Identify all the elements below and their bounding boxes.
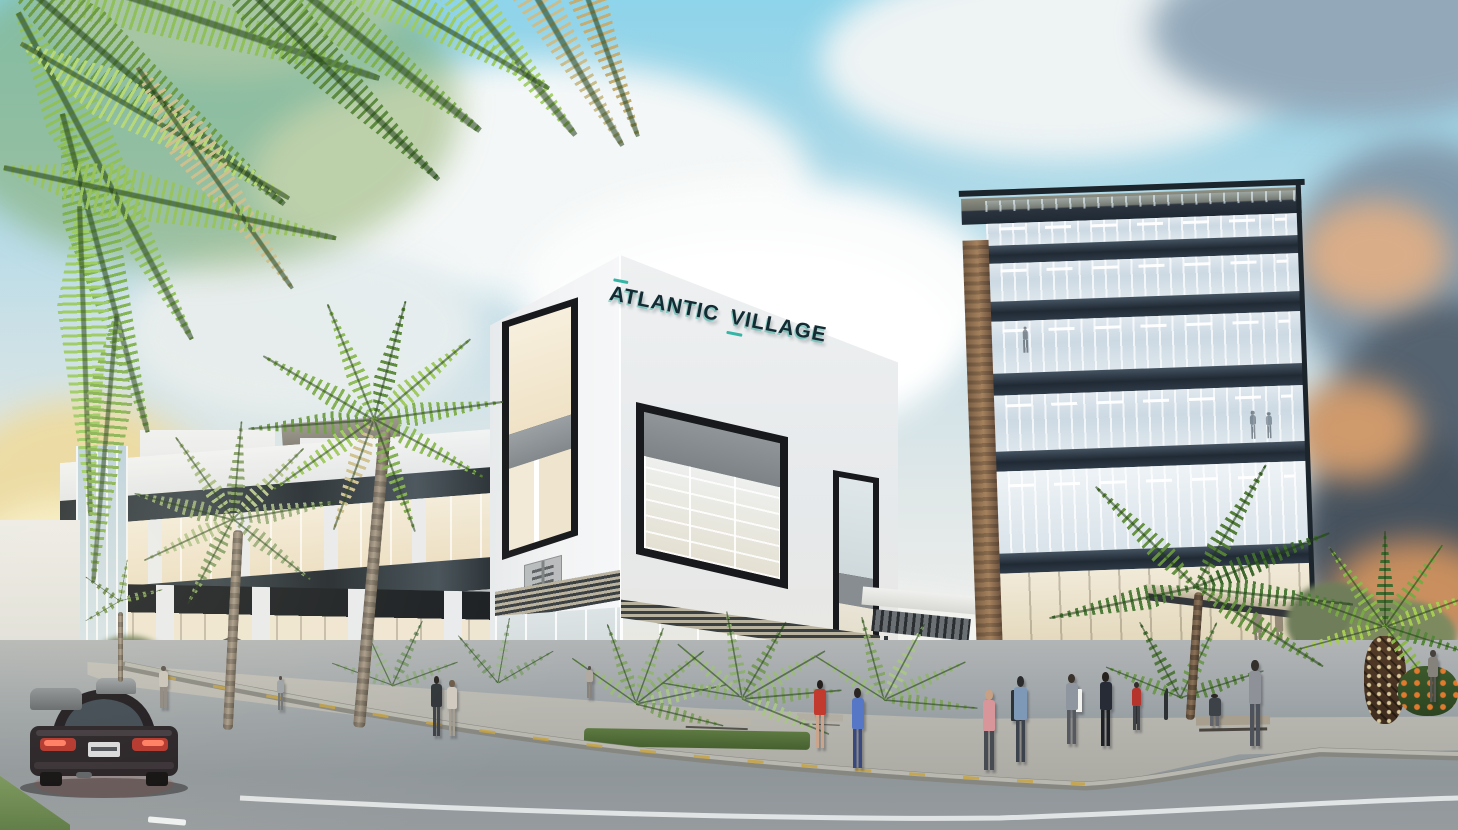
pedestrian-steps [585, 666, 594, 698]
distant-car [96, 678, 136, 694]
car-exhaust [76, 772, 92, 778]
tower-occupant [1022, 327, 1030, 353]
pedestrian-blue-woman [850, 688, 865, 768]
pedestrian-left-sidewalk [158, 666, 169, 708]
pedestrian-navy-suit [1098, 672, 1113, 746]
distant-car [30, 688, 82, 710]
car-wheel-right [146, 772, 168, 786]
palm-trunk-small [118, 612, 123, 682]
corner-window [502, 297, 578, 560]
storm-cloud-amber [1300, 200, 1450, 310]
tower-occupant [1265, 412, 1274, 438]
pedestrian-red-small [1131, 682, 1142, 730]
pedestrian-standing-grey [1247, 660, 1263, 746]
window-glass-upper [509, 307, 571, 435]
pedestrian-left-sidewalk [276, 676, 285, 710]
pedestrian-pink-shirt [981, 690, 997, 770]
bench-sitter [1207, 694, 1222, 728]
pedestrian-grey-suit-papers [1064, 674, 1079, 744]
pedestrian-denim-backpack [1012, 676, 1029, 762]
pedestrian-far-right [1427, 650, 1439, 702]
architectural-rendering: ATLANTIC VILLAGE [0, 0, 1458, 830]
tower-occupant [1249, 411, 1258, 439]
pedestrian-dark-woman [430, 676, 443, 736]
car-wheel-left [40, 772, 62, 786]
pedestrian-light-woman [446, 680, 458, 736]
pedestrian-red-dress [813, 680, 827, 748]
